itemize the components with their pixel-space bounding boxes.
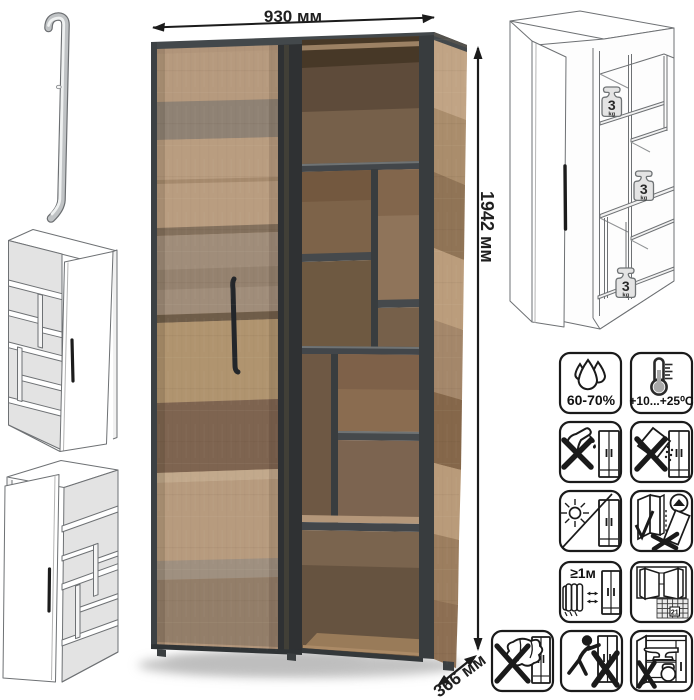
svg-text:60-70%: 60-70% xyxy=(567,392,616,408)
svg-text:+10...+25⁰C: +10...+25⁰C xyxy=(629,394,694,408)
svg-text:21: 21 xyxy=(671,610,679,617)
svg-text:kg: kg xyxy=(640,196,647,202)
svg-text:930 мм: 930 мм xyxy=(264,7,322,26)
svg-text:kg: kg xyxy=(622,293,629,299)
svg-text:1942 мм: 1942 мм xyxy=(477,191,497,263)
svg-text:3: 3 xyxy=(640,181,648,197)
svg-text:≥1м: ≥1м xyxy=(570,565,596,581)
svg-text:kg: kg xyxy=(608,112,615,118)
svg-text:3: 3 xyxy=(622,278,630,294)
svg-text:3: 3 xyxy=(608,97,616,113)
